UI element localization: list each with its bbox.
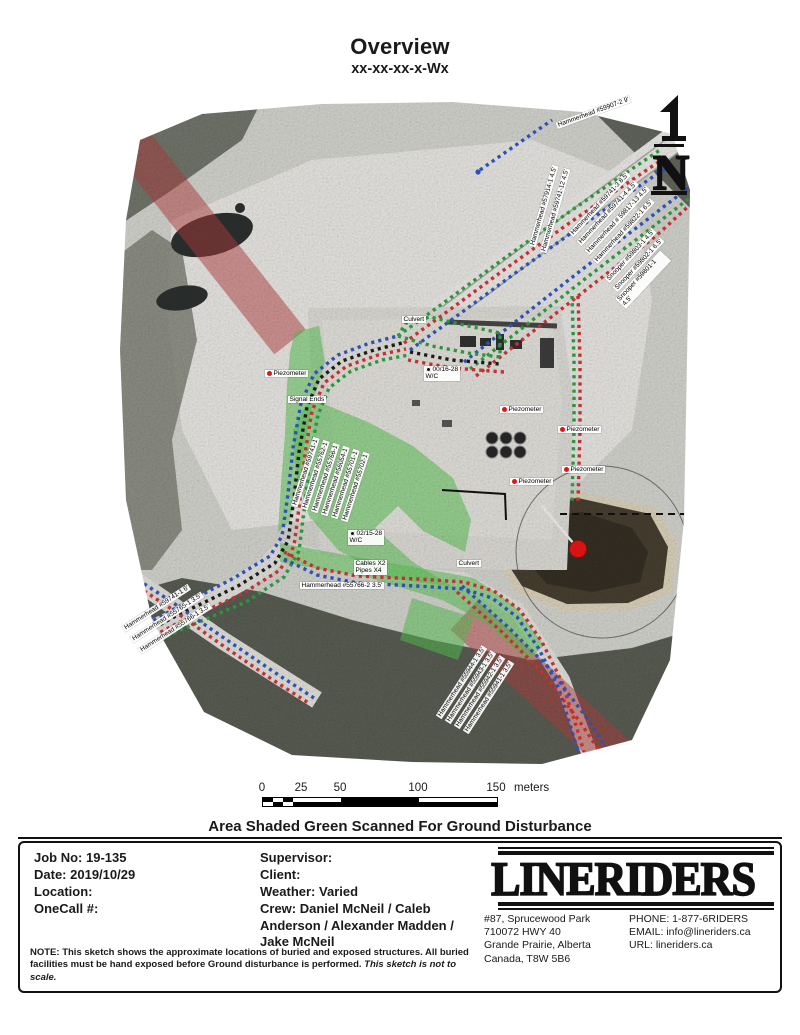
north-arrow-icon: N bbox=[644, 92, 692, 198]
job-no-row: Job No: 19-135 bbox=[34, 850, 135, 867]
date-row: Date: 2019/10/29 bbox=[34, 867, 135, 884]
scale-tick: 50 bbox=[334, 782, 347, 794]
dot-marker-icon bbox=[512, 479, 517, 484]
scale-tick: 0 bbox=[259, 782, 265, 794]
dot-marker-icon bbox=[560, 427, 565, 432]
map-annotation: Piezometer bbox=[510, 478, 553, 485]
dot-marker-icon bbox=[564, 467, 569, 472]
banner-rule bbox=[18, 837, 782, 839]
map-annotation: Piezometer bbox=[558, 426, 601, 433]
map-label-layer: Hammerhead #59907-2 9'Hammerhead #57914-… bbox=[112, 100, 692, 770]
map-annotation: Piezometer bbox=[500, 406, 543, 413]
map-annotation: Piezometer bbox=[562, 466, 605, 473]
title-block: Job No: 19-135 Date: 2019/10/29 Location… bbox=[18, 841, 782, 993]
page-title: Overview bbox=[0, 34, 800, 60]
scale-tick: 25 bbox=[295, 782, 308, 794]
company-contact: PHONE: 1-877-6RIDERS EMAIL: info@linerid… bbox=[629, 913, 774, 966]
crew-row: Crew: Daniel McNeil / Caleb Anderson / A… bbox=[260, 901, 482, 952]
north-arrow: N bbox=[644, 92, 692, 198]
company-address: #87, Sprucewood Park 710072 HWY 40 Grand… bbox=[472, 913, 629, 966]
crew-info: Supervisor: Client: Weather: Varied Crew… bbox=[260, 850, 482, 951]
map-annotation: 00/16-28 W/C bbox=[424, 366, 460, 381]
map-annotation: Piezometer bbox=[265, 370, 308, 377]
onecall-row: OneCall #: bbox=[34, 901, 135, 918]
map-annotation: Culvert bbox=[402, 316, 426, 323]
weather-row: Weather: Varied bbox=[260, 884, 482, 901]
map-annotation: Signal Ends bbox=[288, 396, 326, 403]
map-annotation: Culvert bbox=[457, 560, 481, 567]
legal-location-subtitle: xx-xx-xx-x-Wx bbox=[0, 61, 800, 77]
aerial-map: Hammerhead #59907-2 9'Hammerhead #57914-… bbox=[112, 100, 692, 770]
client-row: Client: bbox=[260, 867, 482, 884]
well-marker-icon bbox=[426, 367, 431, 372]
note-prefix: NOTE: bbox=[30, 947, 60, 958]
scan-banner: Area Shaded Green Scanned For Ground Dis… bbox=[0, 818, 800, 835]
map-annotation: Hammerhead #55766-2 3.5' bbox=[300, 582, 384, 589]
map-annotation: Cables X2 Pipes X4 bbox=[354, 560, 387, 575]
scale-bar: 02550100150 meters bbox=[262, 782, 562, 816]
well-marker-icon bbox=[350, 531, 355, 536]
disclaimer-note: NOTE: This sketch shows the approximate … bbox=[30, 947, 482, 984]
job-info: Job No: 19-135 Date: 2019/10/29 Location… bbox=[34, 850, 135, 918]
map-annotation: Hammerhead #59907-2 9' bbox=[555, 96, 631, 130]
location-row: Location: bbox=[34, 884, 135, 901]
scale-bar-graphic bbox=[262, 797, 498, 807]
dot-marker-icon bbox=[502, 407, 507, 412]
scale-unit: meters bbox=[514, 782, 549, 794]
scale-tick: 100 bbox=[408, 782, 427, 794]
dot-marker-icon bbox=[267, 371, 272, 376]
sketch-page: Overview xx-xx-xx-x-Wx N bbox=[0, 0, 800, 1035]
brand-block: LINERIDERS #87, Sprucewood Park 710072 H… bbox=[472, 845, 774, 966]
company-logo: LINERIDERS bbox=[472, 855, 774, 905]
supervisor-row: Supervisor: bbox=[260, 850, 482, 867]
scale-tick: 150 bbox=[486, 782, 505, 794]
svg-text:N: N bbox=[653, 144, 689, 198]
map-annotation: 02/15-28 W/C bbox=[348, 530, 384, 545]
